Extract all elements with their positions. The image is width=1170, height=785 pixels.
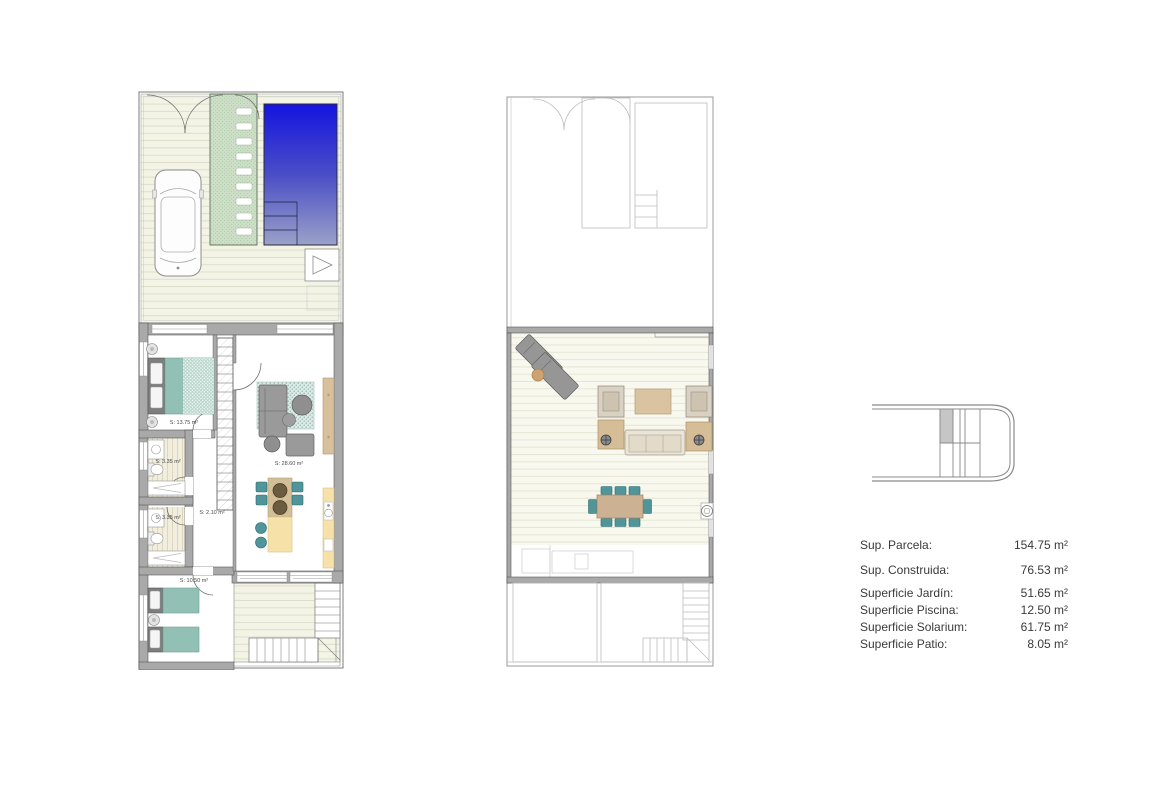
door-gap bbox=[193, 567, 213, 575]
armchair bbox=[286, 434, 314, 456]
summary-row-jardin: Superficie Jardín: 51.65 m² bbox=[860, 585, 1068, 602]
room-label-bedroom-1: S: 13.75 m² bbox=[170, 420, 199, 426]
round-pouf bbox=[264, 436, 280, 452]
round-table-small bbox=[283, 414, 296, 427]
door-gap bbox=[185, 507, 193, 525]
room-label-hallway: S: 2.10 m² bbox=[199, 510, 225, 516]
summary-value: 51.65 m² bbox=[1021, 585, 1068, 602]
summary-row-construida: Sup. Construida: 76.53 m² bbox=[860, 562, 1068, 579]
kitchen-counter bbox=[323, 488, 334, 568]
summary-label: Superficie Solarium: bbox=[860, 619, 967, 636]
summary-label: Superficie Patio: bbox=[860, 636, 947, 653]
summary-value: 12.50 m² bbox=[1021, 602, 1068, 619]
side-unit bbox=[598, 420, 624, 449]
door-gap bbox=[193, 430, 211, 438]
swimming-pool bbox=[264, 104, 337, 245]
room-label-bathroom-1: S: 3.35 m² bbox=[155, 459, 181, 465]
upper-floor-plan bbox=[505, 90, 715, 670]
room-label-bathroom-2: S: 3.35 m² bbox=[155, 515, 181, 521]
round-table bbox=[292, 395, 312, 415]
sideboard bbox=[323, 378, 334, 454]
summary-value: 76.53 m² bbox=[1021, 562, 1068, 579]
patio bbox=[234, 583, 340, 666]
garden-path bbox=[210, 94, 257, 245]
location-key-plan bbox=[872, 398, 1022, 488]
summary-value: 154.75 m² bbox=[1014, 537, 1068, 554]
summary-value: 61.75 m² bbox=[1021, 619, 1068, 636]
summary-value: 8.05 m² bbox=[1027, 636, 1068, 653]
wall-light-fixture bbox=[701, 503, 713, 519]
car bbox=[153, 170, 204, 276]
door-gap bbox=[185, 477, 193, 495]
coffee-table bbox=[635, 389, 671, 414]
summary-row-parcela: Sup. Parcela: 154.75 m² bbox=[860, 537, 1068, 554]
ground-floor-plan: S: 13.75 m² S: 3.35 m² S: 3.35 m² S: 2.1… bbox=[137, 90, 345, 670]
surface-summary: Sup. Parcela: 154.75 m² Sup. Construida:… bbox=[860, 537, 1068, 653]
kitchen-island bbox=[268, 517, 292, 552]
sliding-door bbox=[237, 572, 332, 582]
summary-label: Superficie Jardín: bbox=[860, 585, 953, 602]
room-label-bedroom-2: S: 10.50 m² bbox=[180, 578, 209, 584]
unit-highlight bbox=[940, 409, 953, 443]
dining-table bbox=[597, 495, 643, 518]
summary-label: Sup. Construida: bbox=[860, 562, 949, 579]
side-table-round bbox=[532, 369, 544, 381]
room-label-living: S: 28.60 m² bbox=[275, 461, 304, 467]
bedroom-1-double-bed bbox=[148, 358, 214, 414]
summary-label: Superficie Piscina: bbox=[860, 602, 959, 619]
summary-row-piscina: Superficie Piscina: 12.50 m² bbox=[860, 602, 1068, 619]
summary-row-patio: Superficie Patio: 8.05 m² bbox=[860, 636, 1068, 653]
summary-label: Sup. Parcela: bbox=[860, 537, 932, 554]
floorplan-sheet: S: 13.75 m² S: 3.35 m² S: 3.35 m² S: 2.1… bbox=[0, 0, 1170, 785]
staircase bbox=[217, 338, 233, 510]
summary-row-solarium: Superficie Solarium: 61.75 m² bbox=[860, 619, 1068, 636]
solarium-white-band bbox=[511, 545, 709, 577]
